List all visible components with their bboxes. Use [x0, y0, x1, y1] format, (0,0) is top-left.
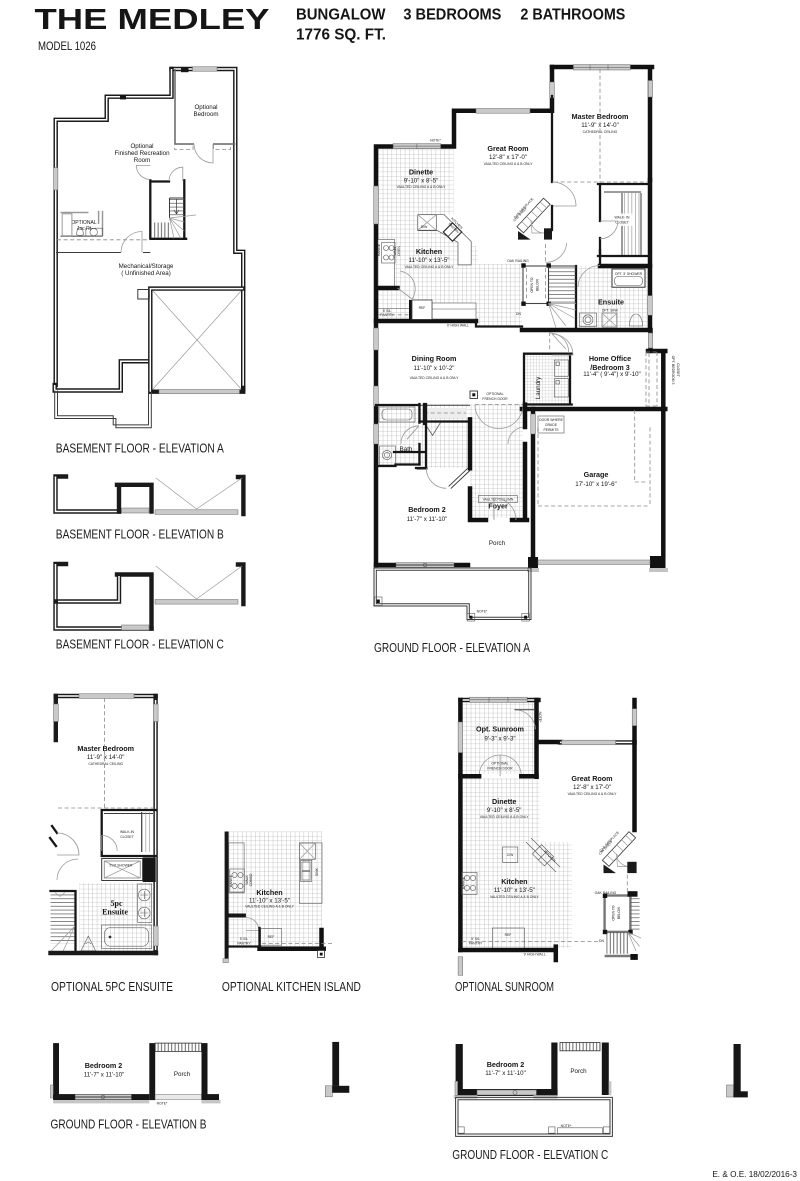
- svg-text:VAULTED CEILING A & B ONL: VAULTED CEILING A & B ONLY: [484, 162, 534, 166]
- svg-text:11'-10" x 13'-5": 11'-10" x 13'-5": [408, 257, 449, 264]
- svg-text:Kitchen: Kitchen: [501, 877, 527, 886]
- svg-text:BUNGALOW: BUNGALOW: [296, 7, 386, 24]
- svg-text:Jac Rt: Jac Rt: [77, 226, 92, 232]
- svg-text:GROUND FLOOR - ELEVATION C: GROUND FLOOR - ELEVATION C: [452, 1147, 608, 1162]
- svg-text:Porch: Porch: [174, 1071, 191, 1078]
- svg-text:9' HIGH WALL: 9' HIGH WALL: [447, 324, 469, 328]
- svg-text:Optional: Optional: [194, 104, 217, 111]
- svg-text:Foyer: Foyer: [488, 502, 508, 511]
- svg-text:NOTE*: NOTE*: [477, 610, 488, 614]
- svg-text:2 BATHROOMS: 2 BATHROOMS: [520, 7, 625, 24]
- svg-text:PANTRY: PANTRY: [237, 942, 251, 946]
- svg-text:Dinette: Dinette: [409, 168, 433, 177]
- svg-text:RANGE: RANGE: [377, 243, 381, 256]
- svg-text:OPTIONAL: OPTIONAL: [486, 392, 503, 396]
- svg-text:Ensuite: Ensuite: [598, 298, 624, 307]
- svg-text:Bedroom 2: Bedroom 2: [487, 1060, 525, 1069]
- svg-text:Home Office: Home Office: [589, 354, 631, 363]
- svg-text:Optional: Optional: [130, 143, 153, 150]
- svg-text:BELOW: BELOW: [536, 278, 540, 291]
- svg-text:THE MEDLEY: THE MEDLEY: [35, 4, 270, 36]
- svg-text:GRADE: GRADE: [545, 423, 558, 427]
- svg-text:WALK-IN: WALK-IN: [120, 830, 135, 834]
- svg-text:9'-3" x 9'-3": 9'-3" x 9'-3": [484, 736, 515, 743]
- svg-text:BELOW: BELOW: [617, 906, 621, 919]
- svg-text:CATHEDRAL CEILING: CATHEDRAL CEILING: [88, 762, 123, 766]
- svg-text:NOTE*: NOTE*: [157, 1102, 168, 1106]
- svg-text:( Unfinished Area): ( Unfinished Area): [121, 270, 171, 277]
- svg-text:Opt. Sunroom: Opt. Sunroom: [476, 725, 524, 734]
- svg-text:PANTRY: PANTRY: [469, 942, 483, 946]
- svg-text:GROUND FLOOR - ELEVATION A: GROUND FLOOR - ELEVATION A: [374, 640, 530, 655]
- svg-text:NOTE*: NOTE*: [538, 712, 542, 723]
- svg-text:5'x3' SHOWER: 5'x3' SHOWER: [110, 864, 134, 868]
- svg-text:D/W: D/W: [421, 225, 428, 229]
- svg-text:OPT. 5' SHOWER: OPT. 5' SHOWER: [615, 272, 643, 276]
- svg-text:REF: REF: [419, 306, 426, 310]
- svg-text:OAK RAILING: OAK RAILING: [507, 259, 529, 263]
- svg-text:9'-10" x 8'-5": 9'-10" x 8'-5": [404, 178, 439, 185]
- svg-text:DN: DN: [516, 312, 521, 316]
- svg-text:OPT. SINK: OPT. SINK: [602, 309, 619, 313]
- svg-text:Finished Recreation: Finished Recreation: [114, 150, 170, 157]
- svg-text:C/W: C/W: [507, 853, 514, 857]
- svg-text:Laundry: Laundry: [535, 376, 542, 399]
- svg-text:Bedroom 2: Bedroom 2: [408, 505, 446, 514]
- svg-text:VAULTED CEILING A & B ONLY: VAULTED CEILING A & B ONLY: [245, 905, 295, 909]
- svg-text:9'-10" x 8'-5": 9'-10" x 8'-5": [487, 807, 522, 814]
- svg-text:11'-7" x 11'-10": 11'-7" x 11'-10": [84, 1072, 125, 1079]
- svg-text:Room: Room: [134, 157, 151, 164]
- svg-text:9' HIGH WALL: 9' HIGH WALL: [524, 953, 546, 957]
- svg-text:1776 SQ. FT.: 1776 SQ. FT.: [296, 27, 386, 44]
- svg-text:CLOSET: CLOSET: [676, 363, 680, 377]
- svg-text:Mechanical/Storage: Mechanical/Storage: [119, 263, 174, 270]
- svg-text:NOTE*: NOTE*: [430, 139, 441, 143]
- svg-text:11'-7" x 11'-10": 11'-7" x 11'-10": [407, 516, 448, 523]
- svg-text:E. & O.E. 18/02/2016-3: E. & O.E. 18/02/2016-3: [712, 1170, 797, 1179]
- svg-text:OPEN TO: OPEN TO: [530, 277, 534, 292]
- svg-text:OPT. BEDROOM 3: OPT. BEDROOM 3: [671, 356, 675, 385]
- svg-text:OPTIONAL SUNROOM: OPTIONAL SUNROOM: [455, 979, 554, 994]
- svg-text:Great Room: Great Room: [571, 774, 612, 783]
- svg-text:CLOSET: CLOSET: [120, 835, 134, 839]
- svg-text:12'-8" x 17'-0": 12'-8" x 17'-0": [489, 154, 527, 161]
- svg-text:Garage: Garage: [584, 470, 609, 479]
- svg-text:Kitchen: Kitchen: [416, 247, 442, 256]
- svg-text:VAULTED CEILING A & B ONLY: VAULTED CEILING A & B ONLY: [405, 265, 455, 269]
- svg-text:MODEL 1026: MODEL 1026: [38, 41, 96, 53]
- svg-text:OVEN: OVEN: [397, 246, 401, 256]
- svg-text:Master Bedroom: Master Bedroom: [77, 744, 134, 753]
- svg-text:VAULTED CEILING A & B ONL: VAULTED CEILING A & B ONLY: [568, 792, 618, 796]
- svg-text:Porch: Porch: [489, 540, 506, 547]
- svg-text:11'-4" ( 9'-4") x 9'-10": 11'-4" ( 9'-4") x 9'-10": [583, 371, 640, 378]
- svg-text:SINK: SINK: [315, 867, 319, 876]
- svg-text:GROUND FLOOR - ELEVATION B: GROUND FLOOR - ELEVATION B: [51, 1117, 207, 1132]
- svg-text:COMBO: COMBO: [249, 873, 253, 886]
- svg-text:OPEN TO: OPEN TO: [612, 905, 616, 920]
- svg-text:5' SIL: 5' SIL: [471, 937, 480, 941]
- svg-text:5' SIL: 5' SIL: [240, 937, 249, 941]
- svg-text:VAULTED CEILING A & B ONL: VAULTED CEILING A & B ONLY: [397, 185, 447, 189]
- svg-text:3 BEDROOMS: 3 BEDROOMS: [403, 7, 501, 24]
- svg-text:11'-10" x 10'-2": 11'-10" x 10'-2": [413, 365, 454, 372]
- svg-text:OPTIONAL 5PC ENSUITE: OPTIONAL 5PC ENSUITE: [51, 979, 173, 994]
- svg-text:Great Room: Great Room: [487, 144, 528, 153]
- svg-text:PERMITS: PERMITS: [543, 428, 559, 432]
- svg-text:BASEMENT FLOOR - ELEVATION B: BASEMENT FLOOR - ELEVATION B: [56, 527, 224, 542]
- svg-text:DN: DN: [599, 939, 604, 943]
- svg-text:11'-10" x 13'-5": 11'-10" x 13'-5": [494, 887, 535, 894]
- svg-text:11'-10" x 13'-5": 11'-10" x 13'-5": [249, 898, 290, 905]
- svg-text:Bedroom: Bedroom: [193, 111, 218, 118]
- svg-text:11'-9" x 14'-0": 11'-9" x 14'-0": [87, 754, 125, 761]
- svg-text:RANGE: RANGE: [462, 876, 466, 889]
- svg-text:REF: REF: [505, 933, 512, 937]
- svg-text:Dining Room: Dining Room: [412, 354, 457, 363]
- svg-text:WALK- IN: WALK- IN: [615, 216, 630, 220]
- svg-text:DOOR WHERE: DOOR WHERE: [539, 418, 563, 422]
- svg-text:VAULTED CEILING A & B ONL: VAULTED CEILING A & B ONLY: [490, 895, 540, 899]
- svg-text:VAULTED CEILING A & B ONL: VAULTED CEILING A & B ONLY: [480, 815, 530, 819]
- svg-text:Ensuite: Ensuite: [102, 908, 128, 917]
- svg-text:BASEMENT FLOOR - ELEVATION A: BASEMENT FLOOR - ELEVATION A: [56, 441, 224, 456]
- svg-text:Dinette: Dinette: [492, 797, 516, 806]
- svg-text:Bedroom 2: Bedroom 2: [85, 1061, 123, 1070]
- svg-text:12'-8" x 17'-0": 12'-8" x 17'-0": [573, 784, 611, 791]
- svg-text:RANGE: RANGE: [229, 874, 233, 887]
- svg-text:NOTE*: NOTE*: [561, 1124, 572, 1128]
- svg-text:REF: REF: [268, 935, 275, 939]
- svg-text:11'-7" x 11'-10": 11'-7" x 11'-10": [485, 1070, 526, 1077]
- svg-text:OPTIONAL KITCHEN ISLAND: OPTIONAL KITCHEN ISLAND: [222, 979, 361, 994]
- svg-text:VAULTED CEILING A & B ONL: VAULTED CEILING A & B ONLY: [410, 376, 460, 380]
- svg-text:Porch: Porch: [570, 1068, 587, 1075]
- svg-text:BASEMENT FLOOR - ELEVATION C: BASEMENT FLOOR - ELEVATION C: [56, 637, 224, 652]
- svg-text:FRENCH DOOR: FRENCH DOOR: [482, 397, 508, 401]
- svg-text:Kitchen: Kitchen: [256, 888, 282, 897]
- svg-text:17'-10" x 19'-6": 17'-10" x 19'-6": [575, 481, 617, 488]
